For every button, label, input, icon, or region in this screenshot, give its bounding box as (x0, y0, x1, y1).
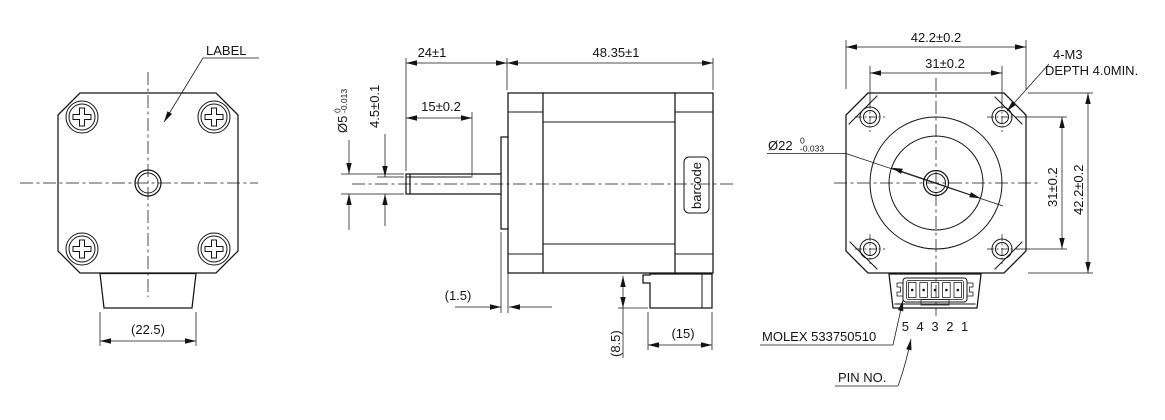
dim-body-height: 42.2±0.2 (1071, 164, 1086, 215)
dim-hole-spacing-right: 31±0.2 (1045, 167, 1060, 207)
engineering-drawing: (22.5) LABEL barcode 24±1 48.35±1 (0, 0, 1165, 420)
connector-part-callout: MOLEX 533750510 (762, 329, 876, 344)
pin-numbers: 5 4 3 2 1 (902, 319, 971, 334)
dim-body-length: 48.35±1 (593, 45, 640, 60)
dim-shaft-diameter-tol-lower: -0.013 (339, 89, 349, 113)
pilot-tol-lower: -0.033 (800, 144, 824, 154)
mount-depth-callout: DEPTH 4.0MIN. (1045, 63, 1138, 78)
dim-connector-length: (15) (671, 326, 694, 341)
pilot-diameter-text: Ø22 (768, 138, 793, 153)
pin-no-callout: PIN NO. (838, 370, 886, 385)
dim-shaft-length: 24±1 (418, 45, 447, 60)
drawing-canvas: (22.5) LABEL barcode 24±1 48.35±1 (0, 0, 1165, 420)
label-callout-text: LABEL (206, 43, 246, 58)
dim-connector-height: (8.5) (608, 330, 623, 357)
dim-body-width: 42.2±0.2 (911, 30, 962, 45)
dim-flat-length: 15±0.2 (421, 99, 461, 114)
dim-pilot-thickness: (1.5) (445, 288, 472, 303)
dim-hole-spacing-top: 31±0.2 (925, 56, 965, 71)
dim-shaft-diameter: Ø5 (335, 116, 350, 133)
barcode-text: barcode (689, 162, 704, 209)
mount-thread-callout: 4-M3 (1053, 47, 1083, 62)
dim-flat-height: 4.5±0.1 (367, 85, 382, 128)
dim-front-connector-width: (22.5) (131, 322, 165, 337)
